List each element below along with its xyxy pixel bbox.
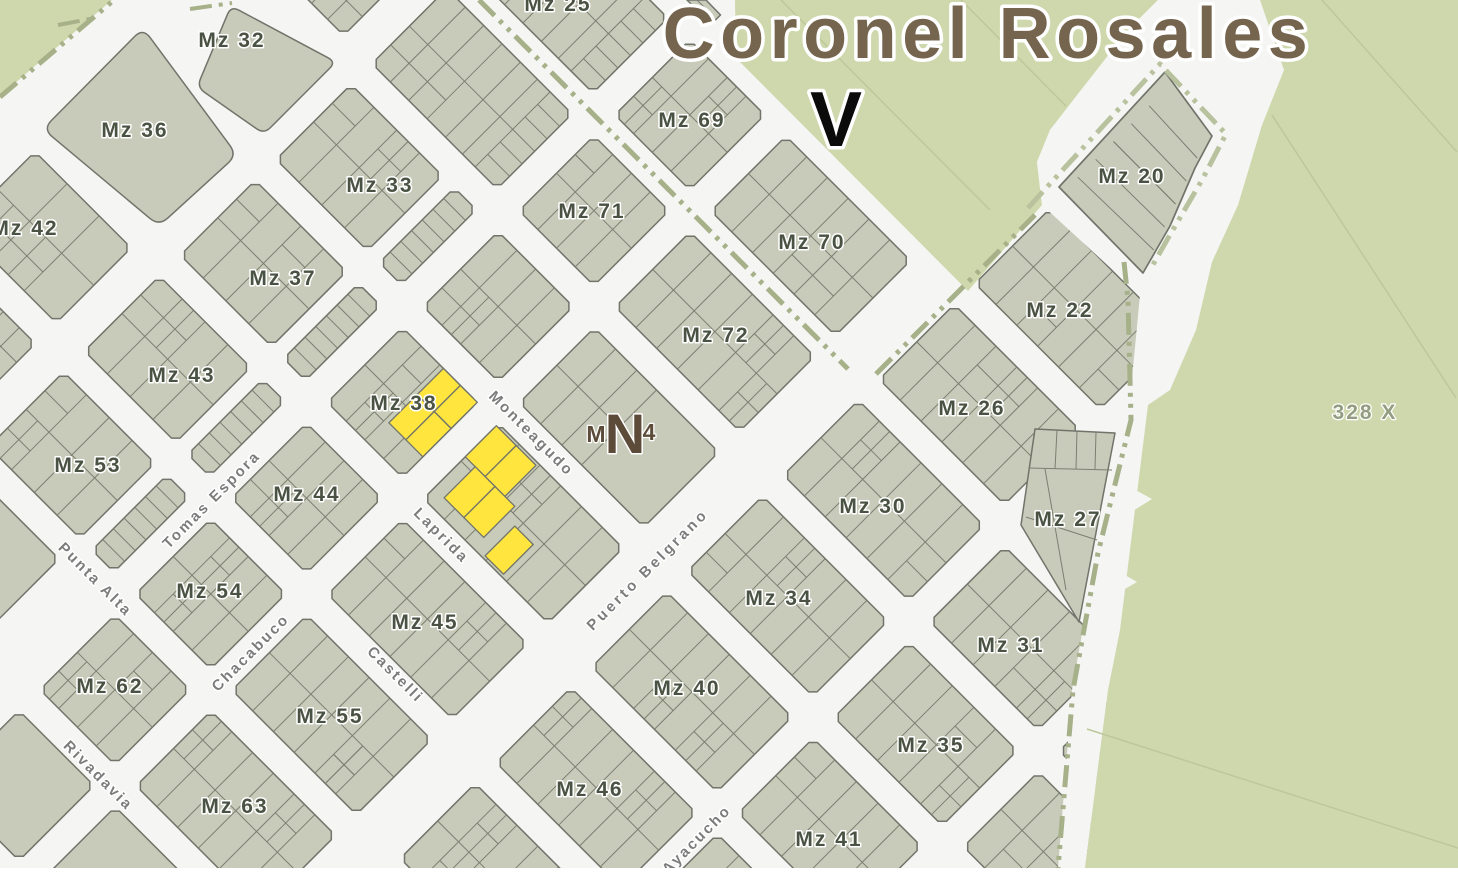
svg-text:Mz 45: Mz 45: [391, 611, 458, 634]
svg-text:Mz 26: Mz 26: [938, 397, 1005, 420]
svg-text:Mz 20: Mz 20: [1098, 165, 1165, 188]
svg-text:Mz 55: Mz 55: [296, 705, 363, 728]
svg-text:Mz 70: Mz 70: [778, 231, 845, 254]
svg-text:Mz 25: Mz 25: [524, 0, 591, 16]
svg-text:Mz 35: Mz 35: [897, 734, 964, 757]
svg-text:Mz 43: Mz 43: [148, 364, 215, 387]
svg-text:Mz 22: Mz 22: [1026, 299, 1093, 322]
svg-text:Mz 71: Mz 71: [558, 200, 625, 223]
svg-text:Mz 41: Mz 41: [795, 828, 862, 851]
svg-text:Mz 44: Mz 44: [273, 483, 340, 506]
svg-text:Mz 62: Mz 62: [76, 675, 143, 698]
svg-text:Mz 32: Mz 32: [198, 29, 265, 52]
svg-text:Mz 27: Mz 27: [1034, 508, 1101, 531]
svg-text:Mz 53: Mz 53: [54, 454, 121, 477]
svg-text:Mz 40: Mz 40: [653, 677, 720, 700]
svg-text:Mz 72: Mz 72: [682, 324, 749, 347]
svg-text:Mz 37: Mz 37: [249, 267, 316, 290]
svg-text:M: M: [586, 421, 605, 447]
svg-text:Mz 38: Mz 38: [370, 392, 437, 415]
svg-text:Coronel Rosales: Coronel Rosales: [663, 0, 1314, 74]
svg-text:Mz 69: Mz 69: [658, 109, 725, 132]
svg-text:Mz 46: Mz 46: [556, 778, 623, 801]
svg-text:Mz 63: Mz 63: [201, 795, 268, 818]
svg-text:N: N: [605, 402, 645, 465]
svg-text:Mz 30: Mz 30: [839, 495, 906, 518]
svg-text:328 X: 328 X: [1333, 401, 1398, 424]
svg-text:Mz 34: Mz 34: [745, 587, 812, 610]
svg-text:Mz 42: Mz 42: [0, 217, 59, 240]
svg-text:Mz 33: Mz 33: [346, 174, 413, 197]
svg-text:Mz 54: Mz 54: [176, 580, 243, 603]
svg-text:Mz 31: Mz 31: [977, 634, 1044, 657]
svg-text:V: V: [810, 75, 862, 163]
svg-text:Mz 36: Mz 36: [101, 119, 168, 142]
svg-text:4: 4: [643, 419, 656, 445]
